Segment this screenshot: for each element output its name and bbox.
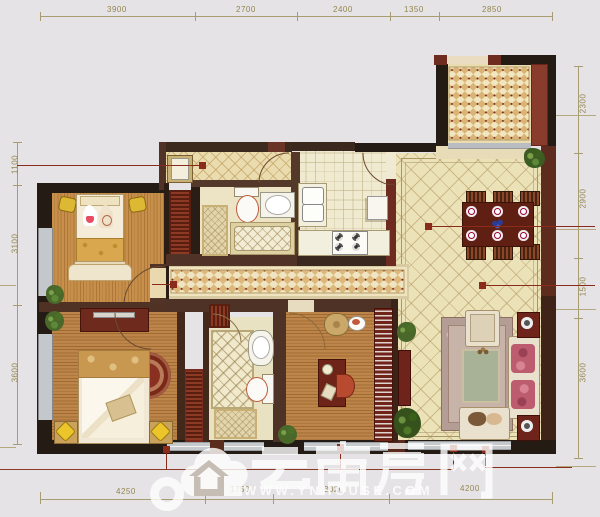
svg-text:WWW.YNHOUSE.COM: WWW.YNHOUSE.COM — [244, 483, 433, 498]
